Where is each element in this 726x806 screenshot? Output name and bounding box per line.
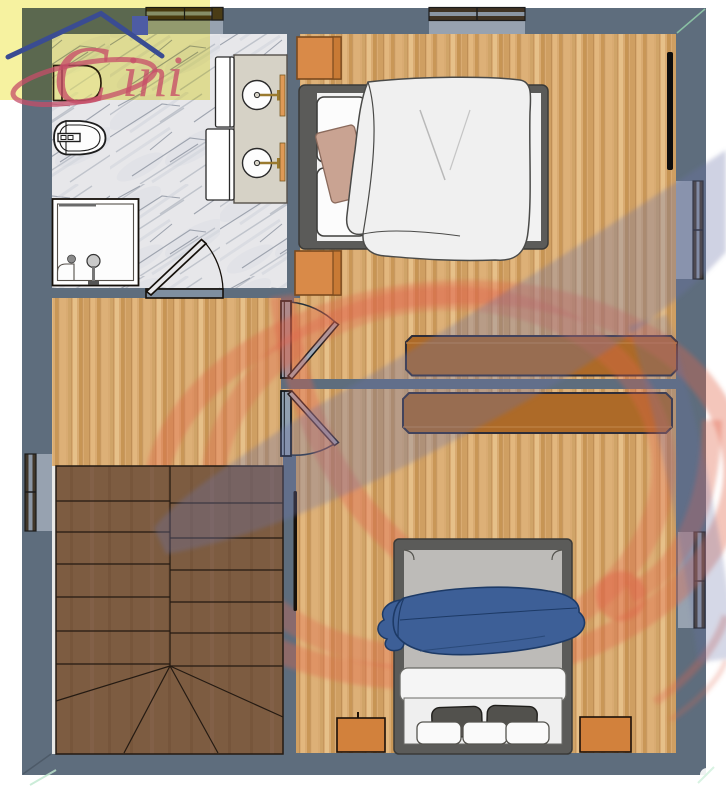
svg-text:C: C: [52, 29, 109, 122]
svg-text:ini: ini: [122, 44, 183, 109]
